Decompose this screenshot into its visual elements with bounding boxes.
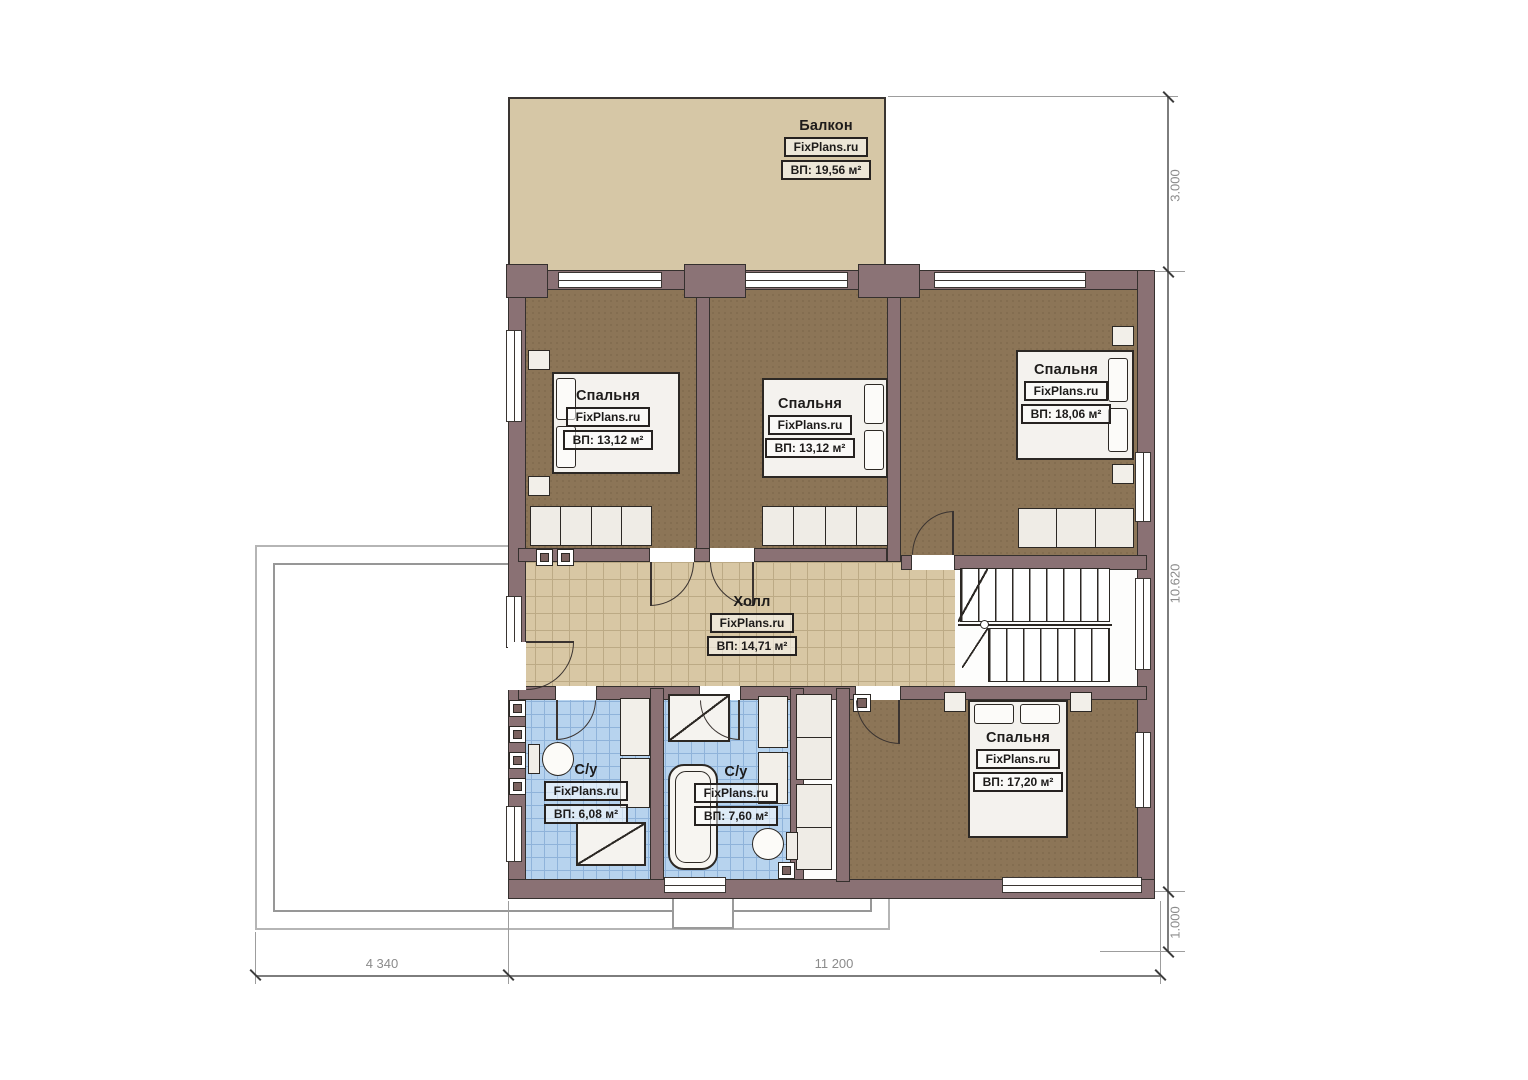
room-area: ВП: 19,56 м² — [781, 160, 872, 180]
extension-line — [888, 96, 1178, 97]
dimension-line-right — [1167, 97, 1169, 952]
window-bed4-bottom — [1002, 877, 1142, 893]
pillow — [1020, 704, 1060, 724]
room-name: Балкон — [799, 118, 853, 134]
nightstand — [944, 692, 966, 712]
room-label-bath1: С/у FixPlans.ru ВП: 6,08 м² — [530, 762, 642, 824]
wall-bath1-bath2 — [650, 688, 664, 880]
door-leaf — [526, 641, 574, 643]
wardrobe — [1018, 508, 1134, 548]
vent-shaft — [509, 778, 526, 795]
pier-column — [858, 264, 920, 298]
toilet-bowl — [752, 828, 784, 860]
window-bed3-right — [1135, 452, 1151, 522]
pier-column — [506, 264, 548, 298]
wall-hall-top-b — [694, 548, 710, 562]
wall-hall-bottom-d — [900, 686, 1147, 700]
wall-bed1-bed2 — [696, 270, 710, 562]
bath-cabinet — [620, 698, 650, 756]
dimension-line-bottom — [255, 975, 1160, 977]
dim-right-bottom: 1.000 — [1168, 893, 1183, 953]
door-opening — [508, 642, 526, 690]
room-label-hall: Холл FixPlans.ru ВП: 14,71 м² — [694, 594, 810, 656]
room-name: С/у — [574, 762, 597, 778]
watermark: FixPlans.ru — [768, 415, 853, 435]
door-leaf — [650, 562, 652, 606]
door-leaf — [556, 700, 558, 740]
stairs-winder — [958, 568, 988, 622]
room-label-bedroom3: Спальня FixPlans.ru ВП: 18,06 м² — [1008, 362, 1124, 424]
dimension-tick — [1162, 266, 1174, 278]
window-bed3-top — [934, 272, 1086, 288]
vent-shaft — [778, 862, 795, 879]
floor-plan: Балкон FixPlans.ru ВП: 19,56 м² Спальня … — [0, 0, 1528, 1080]
pillow — [974, 704, 1014, 724]
vent-shaft — [509, 700, 526, 717]
extension-line — [508, 901, 509, 984]
room-area: ВП: 6,08 м² — [544, 804, 628, 824]
nightstand — [528, 476, 550, 496]
door-opening — [710, 548, 754, 562]
watermark: FixPlans.ru — [544, 781, 629, 801]
room-label-bedroom1: Спальня FixPlans.ru ВП: 13,12 м² — [550, 388, 666, 450]
window-bath1-left — [506, 806, 522, 862]
stairs-winder — [962, 628, 988, 668]
watermark: FixPlans.ru — [710, 613, 795, 633]
window-stairs-right — [1135, 578, 1151, 670]
wall-bed2-bed3 — [887, 270, 901, 562]
wall-hall-top-c — [754, 548, 887, 562]
vent-shaft — [509, 726, 526, 743]
window-bed1-left — [506, 330, 522, 422]
stairs-newel — [980, 620, 989, 629]
door-leaf — [738, 700, 740, 740]
wardrobe — [530, 506, 652, 546]
closet — [796, 784, 832, 870]
wall-closet-bed4 — [836, 688, 850, 882]
extension-line — [1160, 901, 1161, 984]
window-bath2-bottom — [664, 877, 726, 893]
room-label-bedroom2: Спальня FixPlans.ru ВП: 13,12 м² — [752, 396, 868, 458]
room-label-bath2: С/у FixPlans.ru ВП: 7,60 м² — [680, 764, 792, 826]
door-opening — [912, 555, 954, 570]
watermark: FixPlans.ru — [976, 749, 1061, 769]
dim-bottom-right: 11 200 — [784, 956, 884, 971]
room-label-balcony: Балкон FixPlans.ru ВП: 19,56 м² — [766, 118, 886, 180]
room-area: ВП: 13,12 м² — [563, 430, 654, 450]
toilet-tank — [786, 832, 798, 860]
room-name: С/у — [724, 764, 747, 780]
nightstand — [1112, 326, 1134, 346]
vent-shaft — [557, 549, 574, 566]
vent-shaft — [536, 549, 553, 566]
room-name: Холл — [733, 594, 770, 610]
window-bed1-top — [558, 272, 662, 288]
room-area: ВП: 17,20 м² — [973, 772, 1064, 792]
room-area: ВП: 13,12 м² — [765, 438, 856, 458]
porch-outline — [672, 897, 734, 929]
watermark: FixPlans.ru — [566, 407, 651, 427]
stairs-lower-flight — [988, 628, 1110, 682]
window-hall-left — [506, 596, 522, 648]
door-leaf — [898, 700, 900, 744]
nightstand — [1070, 692, 1092, 712]
watermark: FixPlans.ru — [694, 783, 779, 803]
dim-right-main: 10.620 — [1168, 554, 1183, 614]
window-bed4-right — [1135, 732, 1151, 808]
room-name: Спальня — [1034, 362, 1098, 378]
watermark: FixPlans.ru — [784, 137, 869, 157]
dim-right-top: 3.000 — [1168, 156, 1183, 216]
door-opening — [556, 686, 596, 700]
wardrobe — [762, 506, 888, 546]
dim-bottom-left: 4 340 — [332, 956, 432, 971]
vent-shaft — [509, 752, 526, 769]
nightstand — [528, 350, 550, 370]
pier-column — [684, 264, 746, 298]
room-name: Спальня — [986, 730, 1050, 746]
window-bed2-top — [736, 272, 848, 288]
room-name: Спальня — [778, 396, 842, 412]
closet — [796, 694, 832, 780]
dimension-tick — [1162, 91, 1174, 103]
door-leaf — [952, 511, 954, 555]
room-area: ВП: 7,60 м² — [694, 806, 778, 826]
room-area: ВП: 14,71 м² — [707, 636, 798, 656]
room-area: ВП: 18,06 м² — [1021, 404, 1112, 424]
wall-stairs-top-a — [901, 555, 912, 570]
watermark: FixPlans.ru — [1024, 381, 1109, 401]
door-opening — [650, 548, 694, 562]
nightstand — [1112, 464, 1134, 484]
room-name: Спальня — [576, 388, 640, 404]
bath-cabinet — [758, 696, 788, 748]
room-label-bedroom4: Спальня FixPlans.ru ВП: 17,20 м² — [960, 730, 1076, 792]
shower — [576, 822, 646, 866]
